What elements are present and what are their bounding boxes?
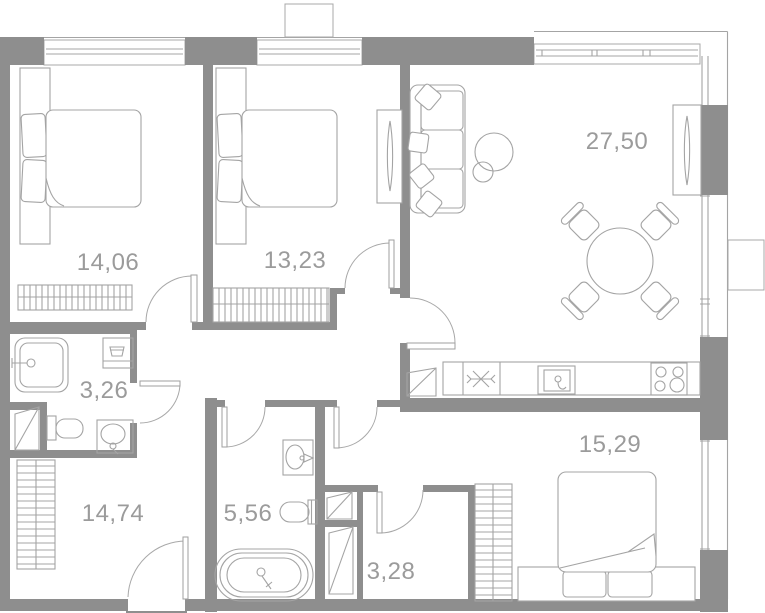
dining-set [560,201,680,321]
door-swing-icon-bedroom-1 [146,275,197,322]
window-living-corner [702,56,708,105]
wardrobe-icon-hallway [17,460,55,569]
vent-shaft-icon-upper [327,492,352,519]
door-swing-icon-storage [377,490,423,533]
floor-plan: 14,06 13,23 27,50 3,26 14,74 5,56 3,28 1… [0,0,765,613]
floor-lamp-icon [473,133,513,182]
room-label-bathroom-1: 3,26 [80,377,129,404]
window-bedroom-1 [44,40,185,65]
chair-icon [560,201,602,243]
room-label-bathroom-2: 5,56 [224,500,273,527]
radiator-icon-living [673,105,701,195]
dining-table-icon [587,228,653,294]
room-label-storage: 3,28 [367,558,416,585]
room-label-living-kitchen: 27,50 [586,128,649,155]
room-label-hallway: 14,74 [82,500,145,527]
washbasin-icon-bathroom-1 [97,420,133,454]
vent-basket-right [728,240,764,290]
window-living-right [700,195,710,337]
vent-shaft-icon-bathroom-1 [15,407,39,450]
wardrobe-icon-bedroom-2 [213,288,329,322]
floor-plan-drawing: 14,06 13,23 27,50 3,26 14,74 5,56 3,28 1… [0,0,765,613]
toilet-icon-bathroom-1 [47,416,83,440]
entrance-door-icon [128,537,188,599]
window-bedroom-2 [257,40,362,65]
bed-icon-bedroom-1 [20,68,141,244]
door-swing-icon-bathroom-1 [140,381,180,423]
door-swing-icon-bedroom-2 [345,240,394,288]
door-swing-icon-bathroom-2 [222,407,265,447]
wardrobe-icon-bedroom-3 [475,484,512,601]
kitchen-counter [443,362,700,395]
vent-basket-top [285,4,333,37]
radiator-icon-bedroom-2 [377,110,402,203]
room-label-bedroom-3: 15,29 [579,431,642,458]
vent-shaft-icon-kitchen [407,368,436,396]
bed-icon-bedroom-3 [518,472,695,601]
vent-shaft-icon-lower [329,527,353,594]
washbasin-icon-bathroom-2 [283,440,313,475]
window-living-top [534,44,700,64]
bed-icon-bedroom-2 [216,68,337,244]
window-bedroom-3 [700,440,710,550]
chair-icon [560,279,602,321]
shower-tray-icon [12,338,68,392]
chair-icon [638,201,680,243]
chair-icon [638,279,680,321]
washing-machine-icon [103,338,133,368]
room-label-bedroom-2: 13,23 [264,247,327,274]
door-swing-icon-bedroom-3 [334,407,377,448]
toilet-icon-bathroom-2 [280,500,317,524]
door-swing-icon-living [407,298,455,349]
wardrobe-icon-bedroom-1 [18,285,132,310]
room-label-bedroom-1: 14,06 [77,249,140,276]
bathtub-icon [215,549,313,601]
sofa-icon [408,83,465,218]
